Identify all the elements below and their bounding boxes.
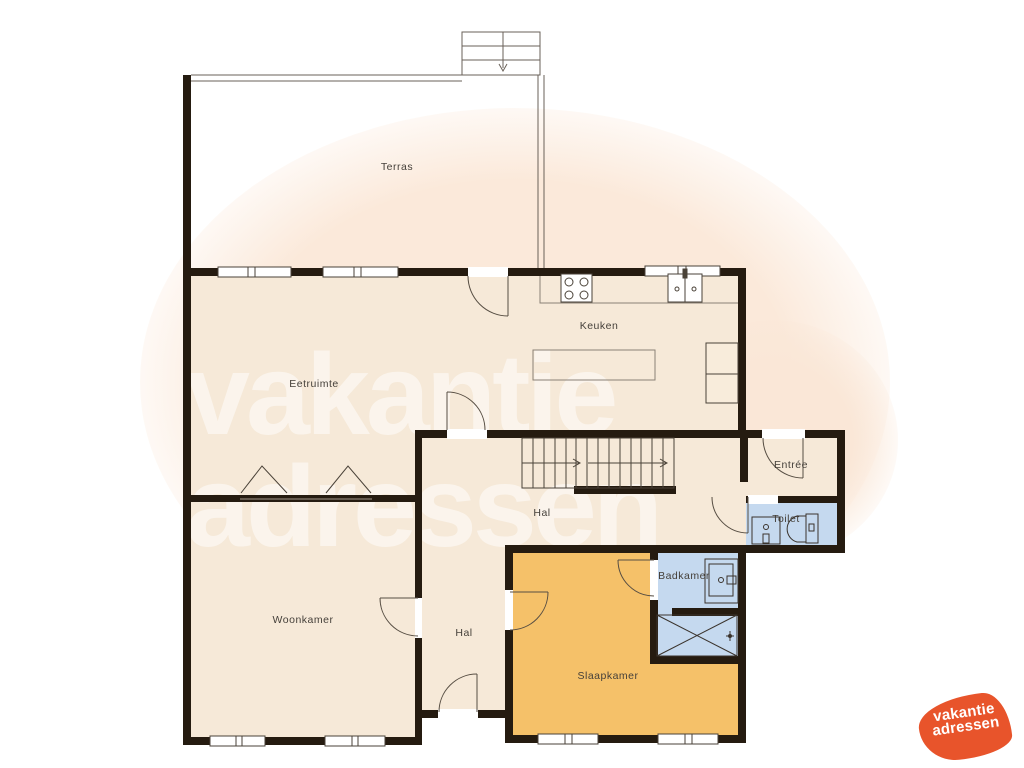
- room-label-terras: Terras: [381, 161, 413, 173]
- wall-hal-entree-divider: [740, 438, 748, 482]
- terras-railing: [191, 75, 544, 268]
- outside-porch-patch: [422, 718, 505, 768]
- room-label-entree: Entrée: [774, 459, 808, 471]
- door-opening: [438, 709, 478, 719]
- door-opening: [415, 598, 422, 638]
- room-label-hal-boven: Hal: [533, 507, 550, 519]
- door-opening: [762, 429, 805, 439]
- outdoor-stairs-icon: [462, 32, 540, 75]
- window: [658, 734, 718, 744]
- wall-east-outer: [837, 430, 845, 553]
- room-label-toilet: Toilet: [772, 513, 800, 525]
- wall-under-stairs: [574, 486, 676, 494]
- door-opening: [748, 495, 778, 504]
- kitchen-cabinets: [706, 343, 738, 403]
- wall-east-lower: [738, 553, 746, 743]
- vakantieadressen-logo: vakantie adressen: [917, 692, 1013, 762]
- wall-left: [183, 75, 191, 745]
- wall-east-upper: [738, 268, 746, 438]
- window: [325, 736, 385, 746]
- kitchen-sink-icon: [668, 269, 702, 302]
- window: [218, 267, 291, 277]
- room-label-eetruimte: Eetruimte: [289, 378, 338, 390]
- stove-icon: [561, 274, 592, 302]
- badkamer-floor: [658, 553, 738, 656]
- window: [323, 267, 398, 277]
- wall-center-vertical: [415, 430, 422, 745]
- door-opening: [447, 429, 487, 439]
- floorplan-drawing: vakantie adressen: [0, 0, 1024, 768]
- wall-shower-bottom: [650, 656, 746, 664]
- door-opening: [505, 590, 513, 630]
- floorplan-image: vakantie adressen: [0, 0, 1024, 768]
- window: [210, 736, 265, 746]
- outside-right-patch: [746, 553, 880, 748]
- room-label-badkamer: Badkamer: [658, 570, 710, 582]
- door-opening: [468, 267, 508, 277]
- wall-slaapkamer-top: [505, 545, 845, 553]
- window: [538, 734, 598, 744]
- room-label-hal-onder: Hal: [455, 627, 472, 639]
- room-label-slaapkamer: Slaapkamer: [577, 670, 638, 682]
- room-label-woonkamer: Woonkamer: [273, 614, 334, 626]
- room-label-keuken: Keuken: [580, 320, 619, 332]
- door-opening: [650, 560, 658, 600]
